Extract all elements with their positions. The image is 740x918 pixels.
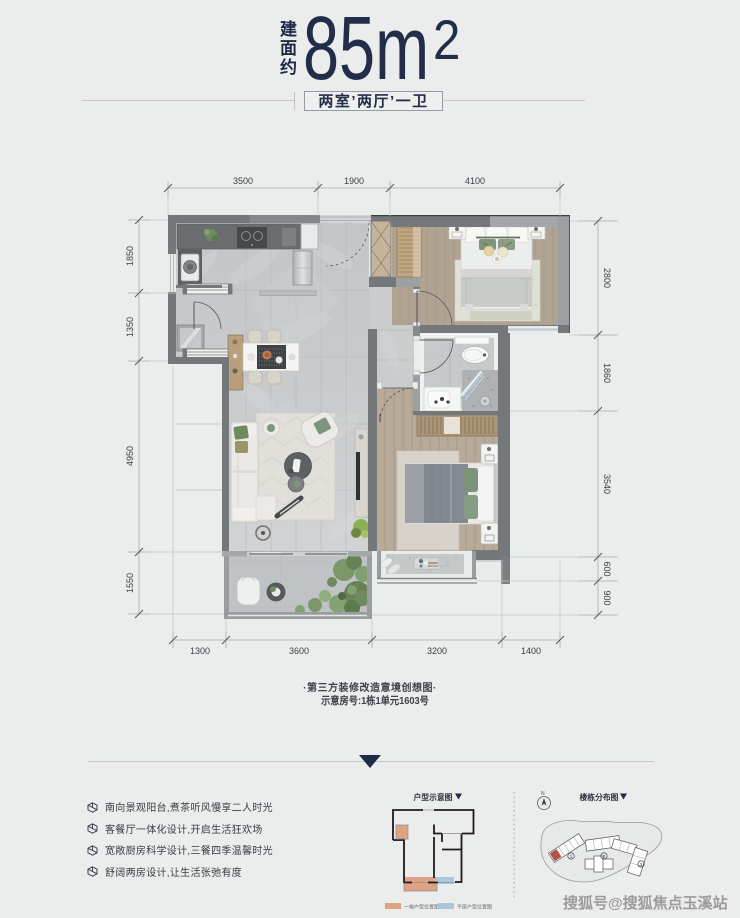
- svg-text:600: 600: [602, 561, 612, 576]
- svg-text:3600: 3600: [289, 646, 309, 656]
- svg-text:1550: 1550: [125, 573, 135, 593]
- svg-text:楼栋分布图: 楼栋分布图: [580, 792, 619, 802]
- svg-text:3200: 3200: [427, 646, 447, 656]
- svg-text:4950: 4950: [125, 446, 135, 466]
- svg-text:3540: 3540: [602, 474, 612, 494]
- svg-text:N: N: [541, 791, 545, 797]
- svg-text:平层户型位置图: 平层户型位置图: [457, 904, 492, 911]
- svg-text:1850: 1850: [125, 246, 135, 266]
- svg-text:4100: 4100: [465, 176, 485, 186]
- svg-text:900: 900: [602, 590, 612, 605]
- svg-text:3500: 3500: [233, 176, 253, 186]
- svg-text:2800: 2800: [602, 268, 612, 288]
- svg-text:1860: 1860: [602, 363, 612, 383]
- svg-text:1350: 1350: [125, 317, 135, 337]
- svg-text:1300: 1300: [190, 646, 210, 656]
- svg-text:1900: 1900: [344, 176, 364, 186]
- svg-text:一梯户型位置图: 一梯户型位置图: [404, 904, 439, 911]
- svg-text:1400: 1400: [521, 646, 541, 656]
- svg-text:户型示意图: 户型示意图: [414, 792, 453, 802]
